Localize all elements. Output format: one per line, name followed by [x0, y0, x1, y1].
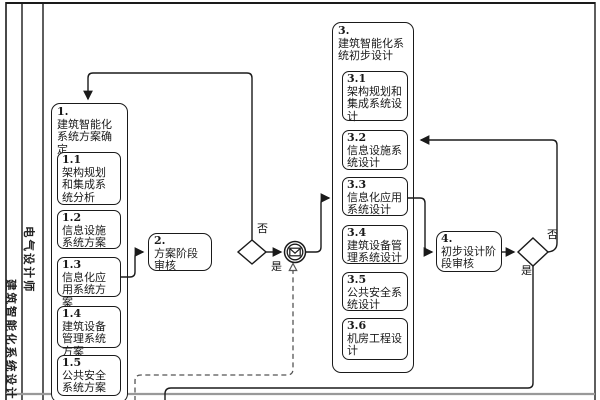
task-1-2: 1.2 信息设施系统方案 [57, 210, 121, 249]
task-1-1: 1.1 架构规划和集成系统分析 [57, 152, 121, 205]
task-1-3: 1.3 信息化应用系统方案 [57, 257, 121, 297]
subprocess-3-number: 3. [338, 25, 408, 38]
task-3-5: 3.5 公共安全系统设计 [342, 272, 408, 311]
gateway1-no-label: 否 [257, 223, 268, 235]
task-1-5: 1.5 公共安全系统方案 [57, 355, 121, 396]
gateway1-yes-label: 是 [271, 261, 282, 273]
pool-title: 建筑智能化系统设计流程 [3, 279, 19, 400]
envelope-icon [290, 248, 300, 256]
task-3-1: 3.1 架构规划和集成系统设计 [342, 71, 408, 121]
message-catch-event [285, 242, 306, 263]
gateway-preliminary-approved [518, 238, 548, 266]
subprocess-3-title: 建筑智能化系统初步设计 [338, 38, 408, 63]
message-flow-open-arrowhead [289, 264, 296, 271]
bpmn-diagram: 建筑智能化系统设计流程 电气设计师 1. 建筑智能化系统方案确定 1.1 架构规… [0, 0, 600, 400]
gateway2-no-label: 否 [547, 229, 558, 241]
sequence-flow-event-to-3 [306, 198, 329, 252]
subprocess-1-number: 1. [57, 106, 122, 119]
task-3-3: 3.3 信息化应用系统设计 [342, 177, 408, 216]
event-inner-circle [287, 244, 303, 260]
task-scheme-stage-review: 2. 方案阶段审核 [148, 233, 212, 271]
task-1-4: 1.4 建筑设备管理系统方案 [57, 306, 121, 348]
subprocess-1-title: 建筑智能化系统方案确定 [57, 119, 122, 157]
task-preliminary-design-review: 4. 初步设计阶段审核 [436, 231, 502, 272]
message-flow-to-event [135, 269, 293, 400]
lane-title-electrical-designer: 电气设计师 [21, 226, 37, 294]
task-3-4: 3.4 建筑设备管理系统设计 [342, 225, 408, 264]
gateway-scheme-approved [238, 240, 266, 264]
task-3-6: 3.6 机房工程设计 [342, 318, 408, 360]
gateway2-yes-label: 是 [521, 265, 532, 277]
task-3-2: 3.2 信息设施系统设计 [342, 130, 408, 170]
event-outer-circle [285, 242, 306, 263]
